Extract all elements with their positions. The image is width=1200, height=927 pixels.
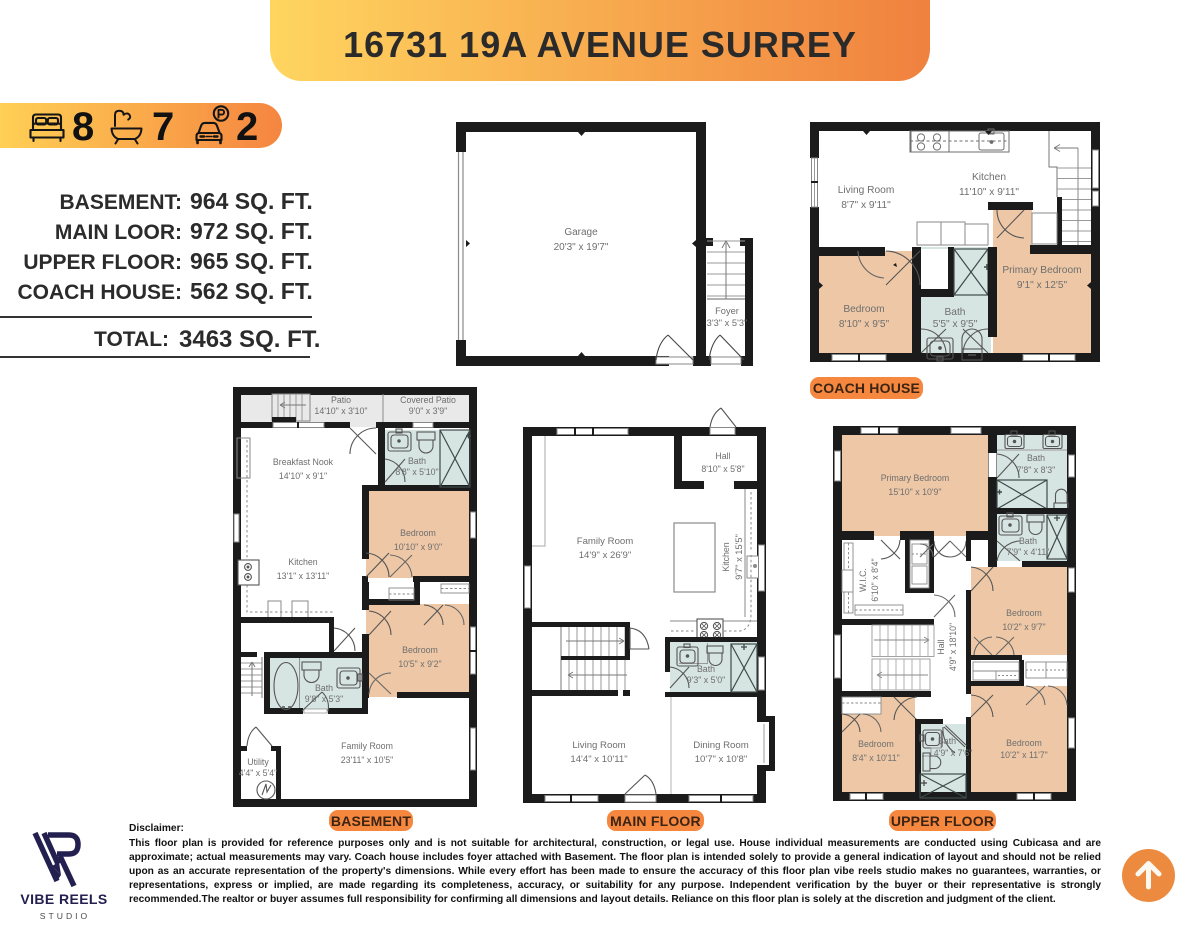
svg-text:Patio: Patio xyxy=(331,395,351,405)
svg-text:14'4" x 10'11": 14'4" x 10'11" xyxy=(570,754,627,765)
svg-text:Bedroom: Bedroom xyxy=(400,528,436,538)
svg-text:Bedroom: Bedroom xyxy=(1006,608,1042,618)
svg-text:W.I.C.: W.I.C. xyxy=(858,568,868,592)
svg-text:9'0" x 3'9": 9'0" x 3'9" xyxy=(409,406,447,416)
svg-text:Covered Patio: Covered Patio xyxy=(400,395,456,405)
svg-text:6'10" x 8'4": 6'10" x 8'4" xyxy=(870,558,880,601)
svg-text:13'1" x 13'11": 13'1" x 13'11" xyxy=(277,571,330,581)
svg-text:Family Room: Family Room xyxy=(341,741,393,751)
svg-text:Bedroom: Bedroom xyxy=(1006,738,1042,748)
svg-text:8'10" x 9'5": 8'10" x 9'5" xyxy=(839,319,890,330)
svg-text:10'10" x 9'0": 10'10" x 9'0" xyxy=(394,542,442,552)
svg-text:10'7" x 10'8": 10'7" x 10'8" xyxy=(695,754,748,765)
svg-text:9'1" x 12'5": 9'1" x 12'5" xyxy=(1017,280,1068,291)
svg-text:Bedroom: Bedroom xyxy=(843,304,884,315)
svg-text:14'10" x 9'1": 14'10" x 9'1" xyxy=(279,471,327,481)
svg-text:3'3" x 5'3": 3'3" x 5'3" xyxy=(707,318,748,328)
svg-text:10'2" x 9'7": 10'2" x 9'7" xyxy=(1002,622,1045,632)
svg-text:5'5" x 9'5": 5'5" x 9'5" xyxy=(933,319,978,330)
svg-text:15'10" x 10'9": 15'10" x 10'9" xyxy=(888,487,941,497)
svg-text:Bath: Bath xyxy=(1027,453,1045,463)
svg-text:Family Room: Family Room xyxy=(577,536,634,547)
svg-text:Hall: Hall xyxy=(715,451,730,461)
svg-text:9'3" x 5'0": 9'3" x 5'0" xyxy=(687,675,725,685)
svg-text:10'5" x 9'2": 10'5" x 9'2" xyxy=(398,659,441,669)
svg-text:STUDIO: STUDIO xyxy=(40,911,90,921)
svg-text:Kitchen: Kitchen xyxy=(288,557,317,567)
svg-text:Bedroom: Bedroom xyxy=(402,645,438,655)
svg-text:Primary Bedroom: Primary Bedroom xyxy=(1002,265,1081,276)
svg-text:Utility: Utility xyxy=(247,757,269,767)
svg-text:Primary Bedroom: Primary Bedroom xyxy=(881,473,949,483)
svg-text:23'11" x 10'5": 23'11" x 10'5" xyxy=(341,755,394,765)
svg-text:Bath: Bath xyxy=(938,736,956,746)
svg-text:4'9" x 7'6": 4'9" x 7'6" xyxy=(934,748,972,758)
svg-text:4'4" x 5'4": 4'4" x 5'4" xyxy=(239,768,277,778)
svg-text:Foyer: Foyer xyxy=(715,306,739,316)
svg-text:Garage: Garage xyxy=(564,227,598,238)
svg-text:8'10" x 5'8": 8'10" x 5'8" xyxy=(701,464,744,474)
svg-text:Living Room: Living Room xyxy=(572,740,625,751)
svg-text:10'2" x 11'7": 10'2" x 11'7" xyxy=(1000,750,1048,760)
svg-text:Bedroom: Bedroom xyxy=(858,739,894,749)
svg-text:14'10" x 3'10": 14'10" x 3'10" xyxy=(314,406,367,416)
svg-text:8'4" x 10'11": 8'4" x 10'11" xyxy=(852,753,900,763)
svg-text:4'9" x 18'10": 4'9" x 18'10" xyxy=(948,623,958,671)
svg-text:Breakfast Nook: Breakfast Nook xyxy=(273,457,334,467)
svg-text:20'3" x 19'7": 20'3" x 19'7" xyxy=(554,242,609,253)
svg-text:14'9" x 26'9": 14'9" x 26'9" xyxy=(579,550,632,561)
svg-text:Bath: Bath xyxy=(315,683,333,693)
svg-text:8'8" x 5'10": 8'8" x 5'10" xyxy=(395,467,438,477)
svg-text:7'8" x 8'3": 7'8" x 8'3" xyxy=(1017,465,1055,475)
svg-text:Dining Room: Dining Room xyxy=(693,740,748,751)
svg-text:Living Room: Living Room xyxy=(838,185,895,196)
svg-text:9'7" x 15'5": 9'7" x 15'5" xyxy=(734,534,744,580)
svg-text:11'10" x 9'11": 11'10" x 9'11" xyxy=(959,187,1019,198)
svg-text:VIBE REELS: VIBE REELS xyxy=(20,891,107,907)
svg-text:7'9" x 4'11": 7'9" x 4'11" xyxy=(1007,547,1050,557)
svg-text:9'8" x 5'3": 9'8" x 5'3" xyxy=(305,694,343,704)
svg-text:Bath: Bath xyxy=(408,456,426,466)
svg-text:Kitchen: Kitchen xyxy=(721,542,731,571)
svg-text:Bath: Bath xyxy=(1019,536,1037,546)
svg-text:Hall: Hall xyxy=(936,639,946,654)
svg-text:8'7" x 9'11": 8'7" x 9'11" xyxy=(841,200,891,211)
svg-text:Bath: Bath xyxy=(945,307,966,318)
svg-text:Bath: Bath xyxy=(697,664,715,674)
svg-text:Kitchen: Kitchen xyxy=(972,172,1006,183)
